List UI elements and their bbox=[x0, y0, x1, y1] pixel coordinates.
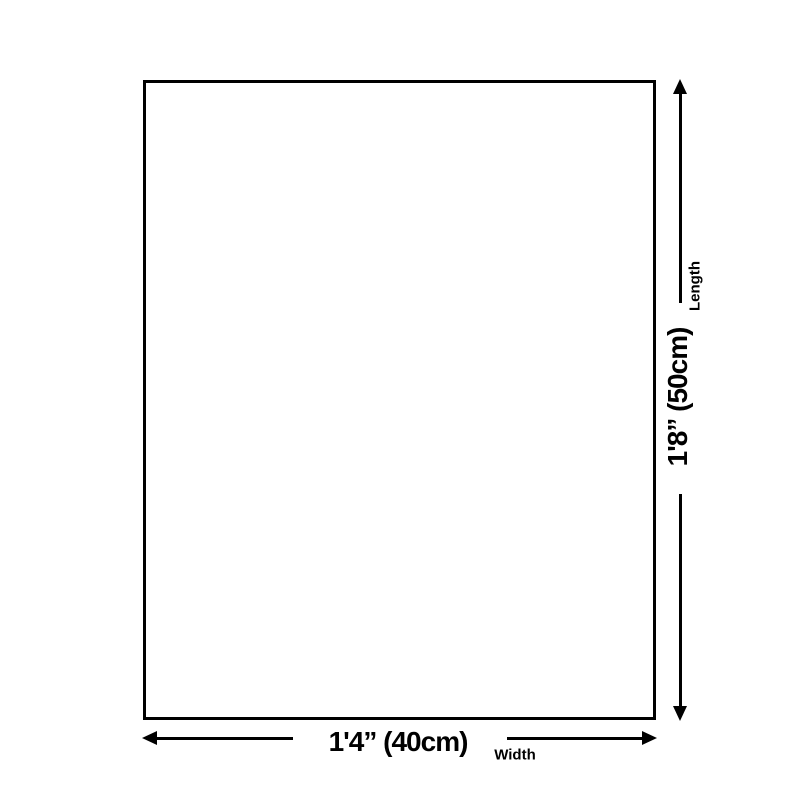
length-axis-label: Length bbox=[688, 261, 703, 311]
arrow-down-icon bbox=[673, 706, 687, 721]
arrow-right-icon bbox=[642, 731, 657, 745]
arrow-left-icon bbox=[142, 731, 157, 745]
length-dimension-value: 1'8” (50cm) bbox=[664, 328, 692, 467]
width-dimension-value: 1'4” (40cm) bbox=[329, 728, 468, 756]
width-dimension-line-right bbox=[507, 737, 643, 740]
width-axis-label: Width bbox=[494, 748, 536, 763]
width-dimension-line-left bbox=[156, 737, 293, 740]
length-dimension-line-bottom bbox=[679, 494, 682, 707]
size-diagram: Length 1'8” (50cm) 1'4” (40cm) Width bbox=[0, 0, 800, 800]
product-outline-rectangle bbox=[143, 80, 656, 720]
length-dimension-line-top bbox=[679, 92, 682, 303]
